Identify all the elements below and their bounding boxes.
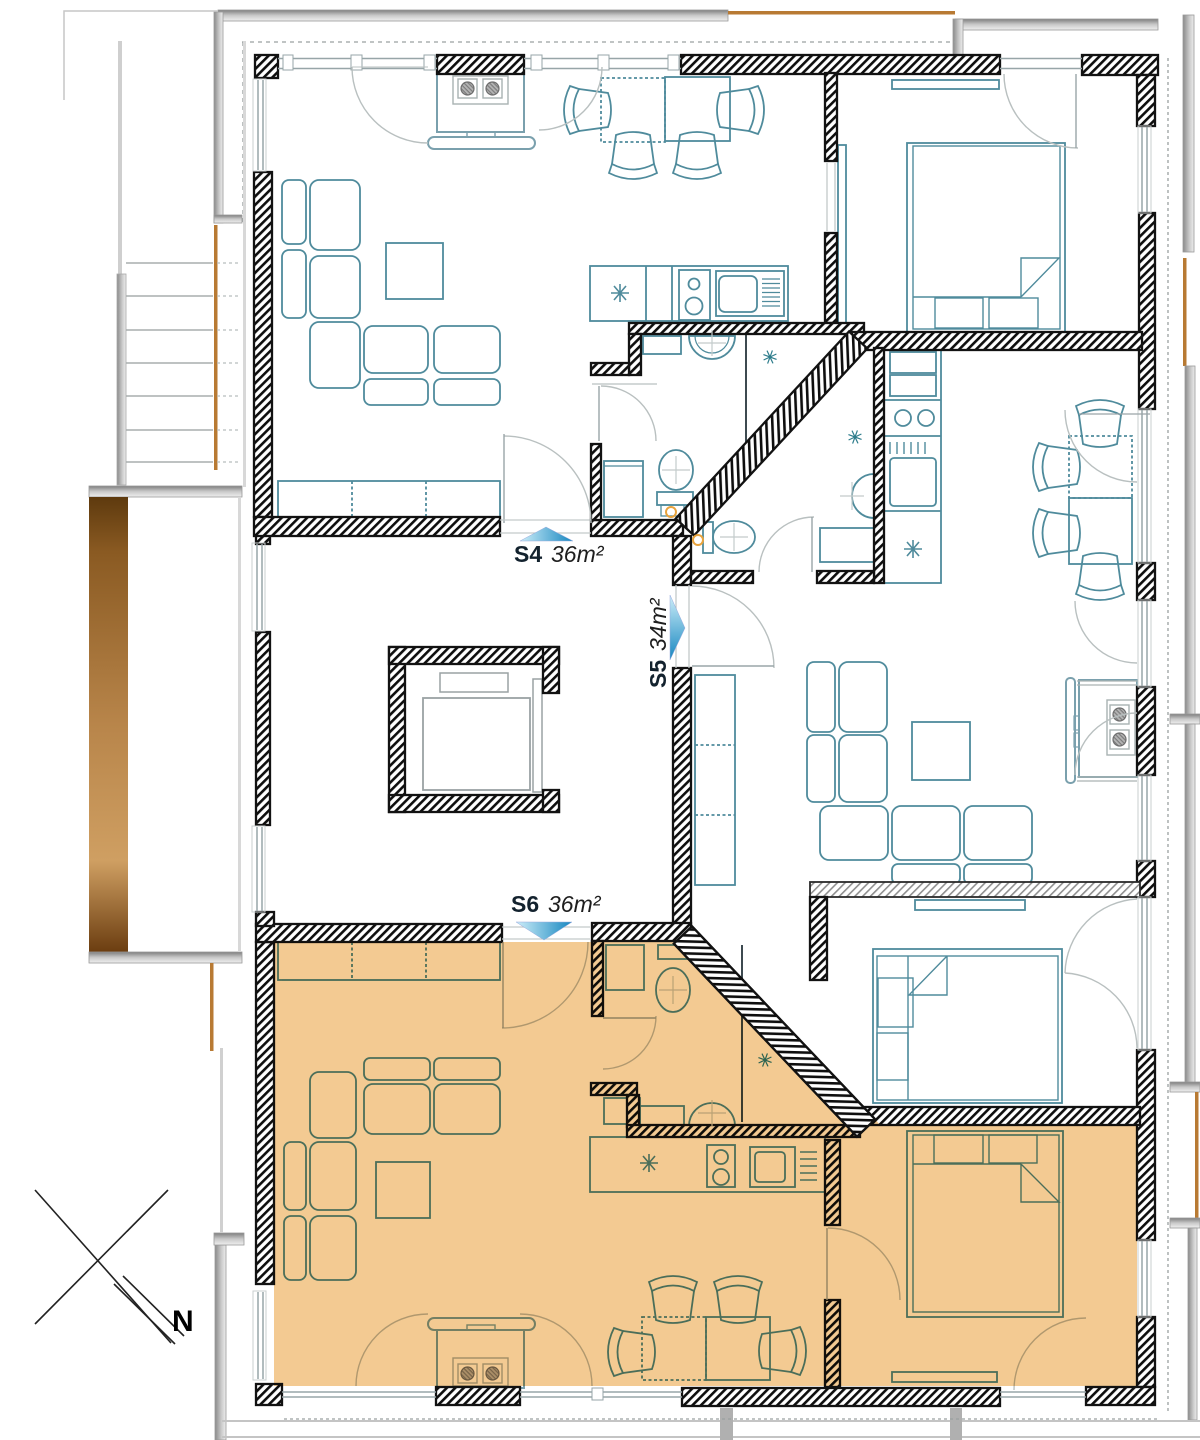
- svg-text:36m²: 36m²: [551, 541, 605, 567]
- svg-text:N: N: [172, 1305, 194, 1338]
- svg-text:34m²: 34m²: [645, 597, 671, 651]
- svg-text:S5: S5: [645, 660, 671, 688]
- svg-text:S6: S6: [511, 891, 539, 917]
- svg-text:36m²: 36m²: [548, 891, 602, 917]
- svg-text:S4: S4: [514, 541, 542, 567]
